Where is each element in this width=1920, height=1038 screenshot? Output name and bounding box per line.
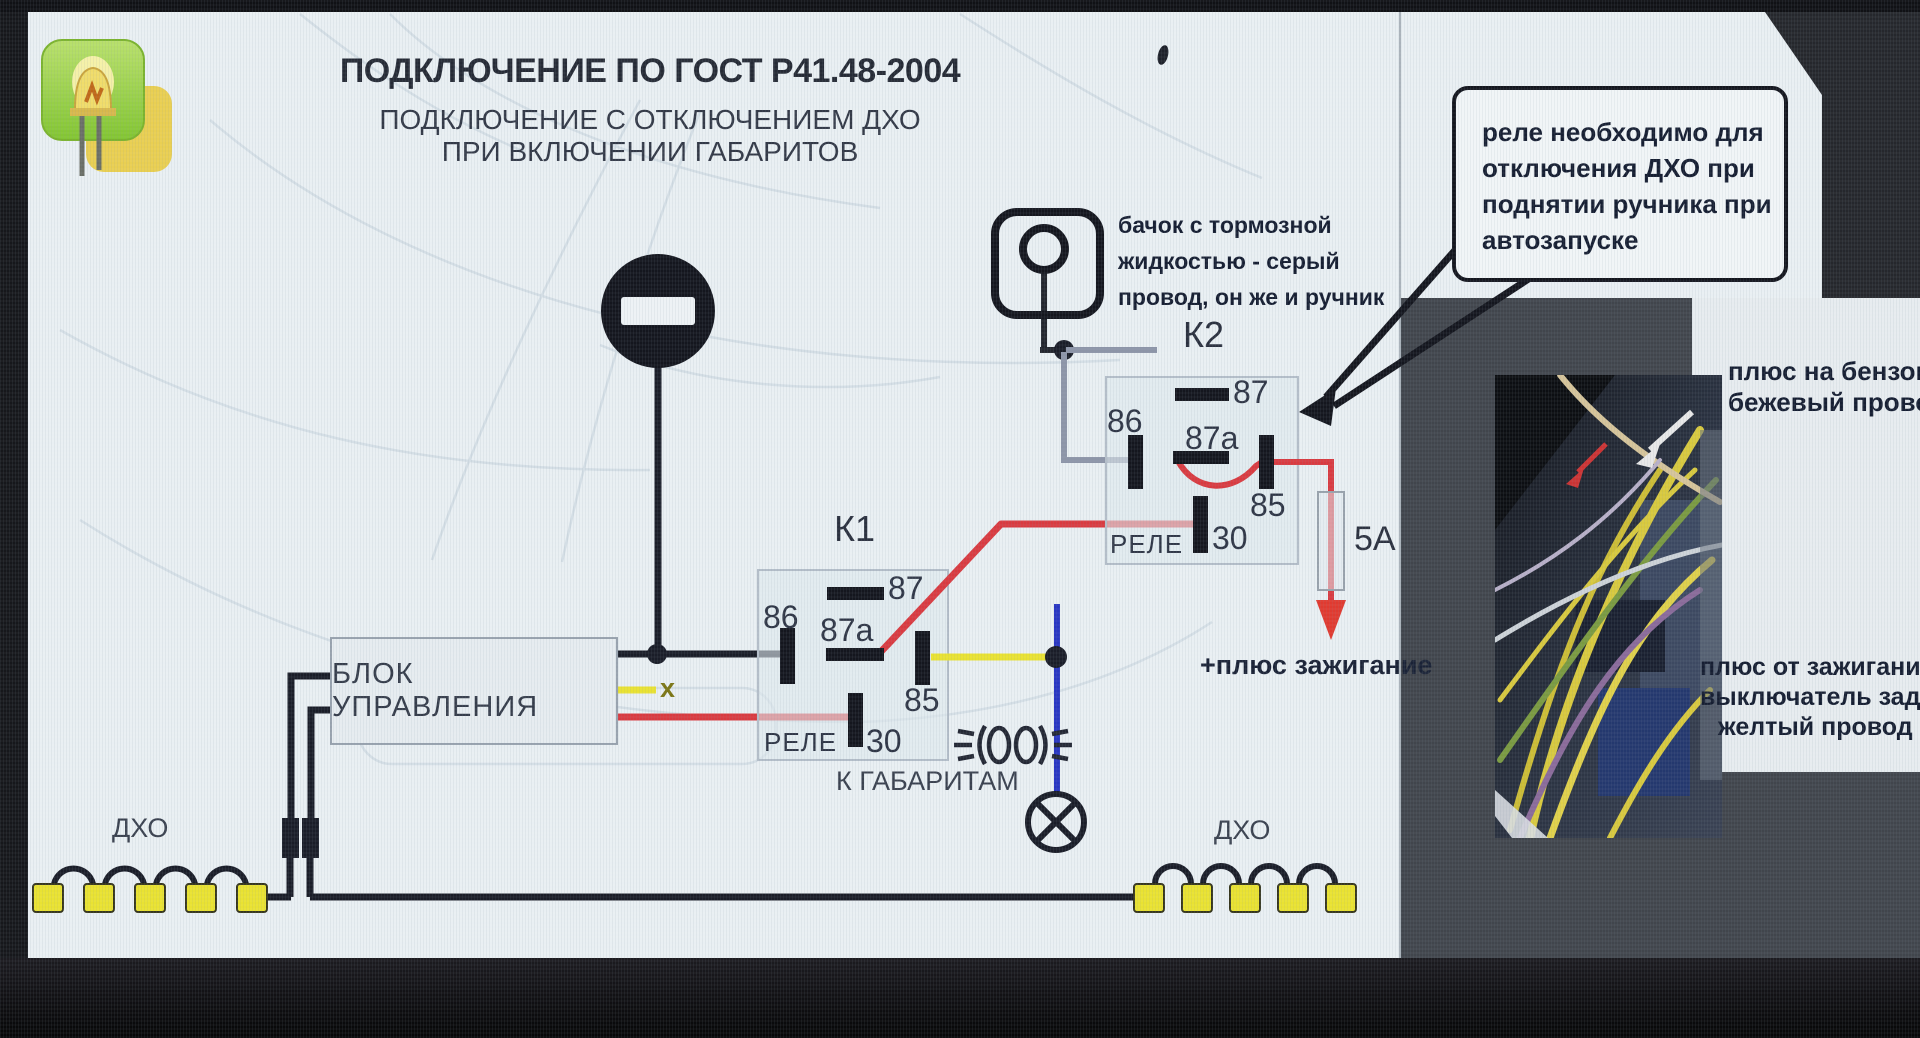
k2-pin86-label: 86 [1107,403,1143,440]
page-subtitle-line1: ПОДКЛЮЧЕНИЕ С ОТКЛЮЧЕНИЕМ ДХО [300,104,1000,136]
top-bezel [0,0,1920,12]
engine-bay-photo [1495,375,1722,838]
led-square [33,884,63,912]
note-line: отключения ДХО при [1482,150,1774,186]
caption-line: желтый провод [1700,712,1920,742]
note-line: реле необходимо для [1482,114,1774,150]
photo-caption-bottom: плюс от зажигания н выключатель зад.ход … [1700,652,1920,742]
k1-rele-label: РЕЛЕ [764,727,837,758]
topright-dark-area [1822,12,1920,298]
k1-pin86-label: 86 [763,599,799,636]
drl-right-label: ДХО [1214,815,1270,846]
relay-k2-name: К2 [1183,314,1224,356]
k2-pin85-bar [1259,435,1274,489]
k1-pin85-label: 85 [904,682,940,719]
k2-pin30-bar [1193,496,1208,553]
reservoir-caption-line: бачок с тормозной [1118,207,1384,243]
caption-line: бежевый провод [1728,387,1920,418]
k1-pin30-label: 30 [866,723,902,760]
relay-note-box: реле необходимо для отключения ДХО при п… [1452,86,1788,282]
k2-pin85-label: 85 [1250,487,1286,524]
caption-line: выключатель зад.ход [1700,682,1920,712]
no-entry-bar [621,297,695,325]
reservoir-caption: бачок с тормозной жидкостью - серый пров… [1118,207,1384,315]
connector-block-right [302,818,319,858]
logo-led-base [70,108,116,116]
page-subtitle-line2: ПРИ ВКЛЮЧЕНИИ ГАБАРИТОВ [300,136,1000,168]
caption-line: плюс от зажигания н [1700,652,1920,682]
junction-dot [647,644,667,664]
k2-rele-label: РЕЛЕ [1110,529,1183,560]
relay-k1-name: К1 [834,508,875,550]
control-block: БЛОК УПРАВЛЕНИЯ [330,637,618,745]
reservoir-caption-line: провод, он же и ручник [1118,279,1384,315]
x-marker: х [660,673,675,704]
led-square [186,884,216,912]
k1-pin85-bar [915,631,930,685]
reservoir-caption-line: жидкостью - серый [1118,243,1384,279]
led-square [1230,884,1260,912]
reservoir-cap [1023,228,1065,270]
k1-pin87-label: 87 [888,570,924,607]
k1-pin30-bar [848,693,863,747]
k1-pin87a-bar [826,648,884,661]
monitor-photo: ПОДКЛЮЧЕНИЕ ПО ГОСТ Р41.48-2004 ПОДКЛЮЧЕ… [0,0,1920,1038]
note-line: автозапуске [1482,222,1774,258]
bottom-bezel [0,958,1920,1038]
k2-pin86-bar [1128,435,1143,489]
left-bezel [0,0,28,958]
fuse-body [1318,492,1344,590]
k1-pin86-bar [780,628,795,684]
led-square [237,884,267,912]
caption-line: плюс на бензонас [1728,356,1920,387]
ignition-plus-label: +плюс зажигание [1200,650,1432,681]
k1-pin87-bar [827,587,884,600]
to-parking-lights-label: К ГАБАРИТАМ [836,766,1019,797]
k2-pin87-label: 87 [1233,374,1269,411]
led-square [135,884,165,912]
k1-pin87a-label: 87a [820,612,873,649]
note-line: поднятии ручника при [1482,186,1774,222]
k2-pin87a-label: 87a [1185,420,1238,457]
fuse-label: 5А [1354,520,1396,559]
k2-pin87-bar [1175,388,1229,401]
drl-left-label: ДХО [112,813,168,844]
connector-block-left [282,818,299,858]
led-square [84,884,114,912]
photo-caption-top: плюс на бензонас бежевый провод [1728,356,1920,418]
led-square [1326,884,1356,912]
page-title: ПОДКЛЮЧЕНИЕ ПО ГОСТ Р41.48-2004 [280,52,1020,91]
junction-dot-yellow-blue [1045,646,1067,668]
led-square [1182,884,1212,912]
led-square [1134,884,1164,912]
led-square [1278,884,1308,912]
k2-pin30-label: 30 [1212,520,1248,557]
